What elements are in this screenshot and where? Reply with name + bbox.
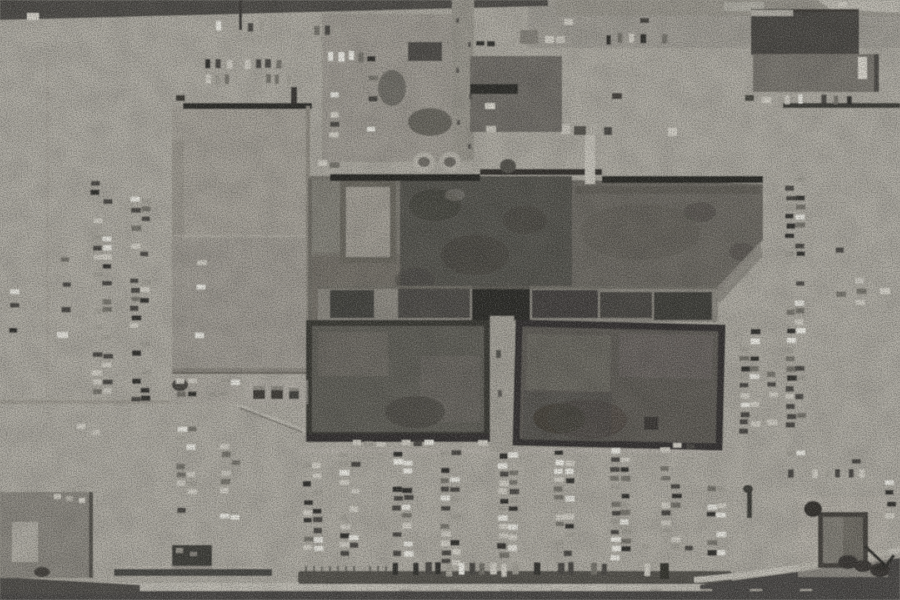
aerial-photo-canvas xyxy=(0,0,900,600)
film-grain-light-overlay xyxy=(0,0,900,600)
aerial-photograph xyxy=(0,0,900,600)
